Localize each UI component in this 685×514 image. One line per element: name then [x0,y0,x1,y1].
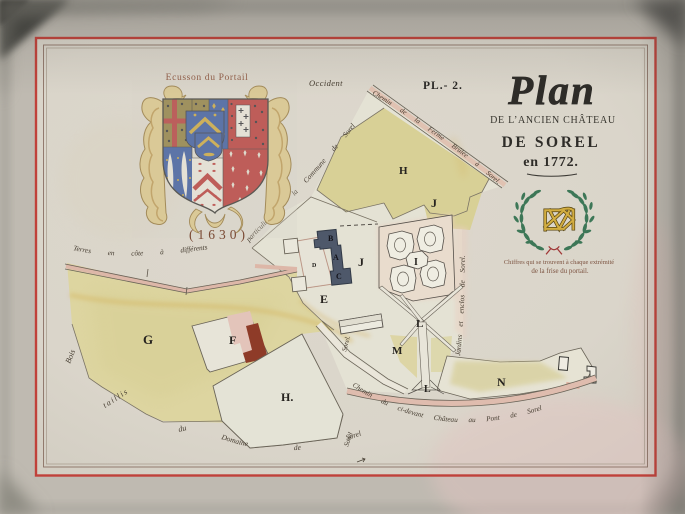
svg-text:H.: H. [281,390,293,404]
svg-text:A: A [333,253,339,262]
svg-text:D: D [312,263,317,269]
svg-text:N: N [497,375,506,389]
svg-text:Chiffres qui se trouvent à cha: Chiffres qui se trouvent à chaque extrém… [504,259,614,266]
svg-text:(1630): (1630) [189,227,249,242]
svg-text:E: E [320,292,328,306]
svg-text:DE SOREL: DE SOREL [502,134,601,151]
svg-text:H: H [399,165,408,177]
svg-text:J: J [358,255,364,269]
svg-text:C: C [336,272,342,281]
svg-text:M: M [392,345,403,357]
svg-text:I: I [414,257,418,268]
svg-text:B: B [328,234,334,243]
svg-text:en 1772.: en 1772. [523,155,578,170]
svg-text:F: F [229,333,236,347]
svg-text:DE L’ANCIEN CHÂTEAU: DE L’ANCIEN CHÂTEAU [490,114,616,126]
svg-text:de la frise du portail.: de la frise du portail. [531,268,588,275]
svg-text:L: L [416,318,423,330]
svg-text:G: G [143,332,153,347]
svg-text:J: J [431,196,437,210]
svg-text:L: L [424,384,431,395]
